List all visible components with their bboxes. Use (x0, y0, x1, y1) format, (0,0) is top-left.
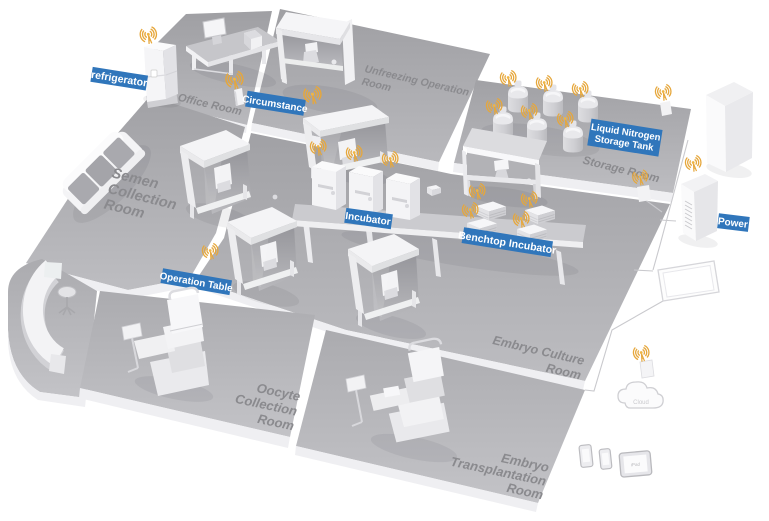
svg-text:iPad: iPad (631, 462, 641, 468)
svg-text:Cloud: Cloud (633, 400, 649, 406)
